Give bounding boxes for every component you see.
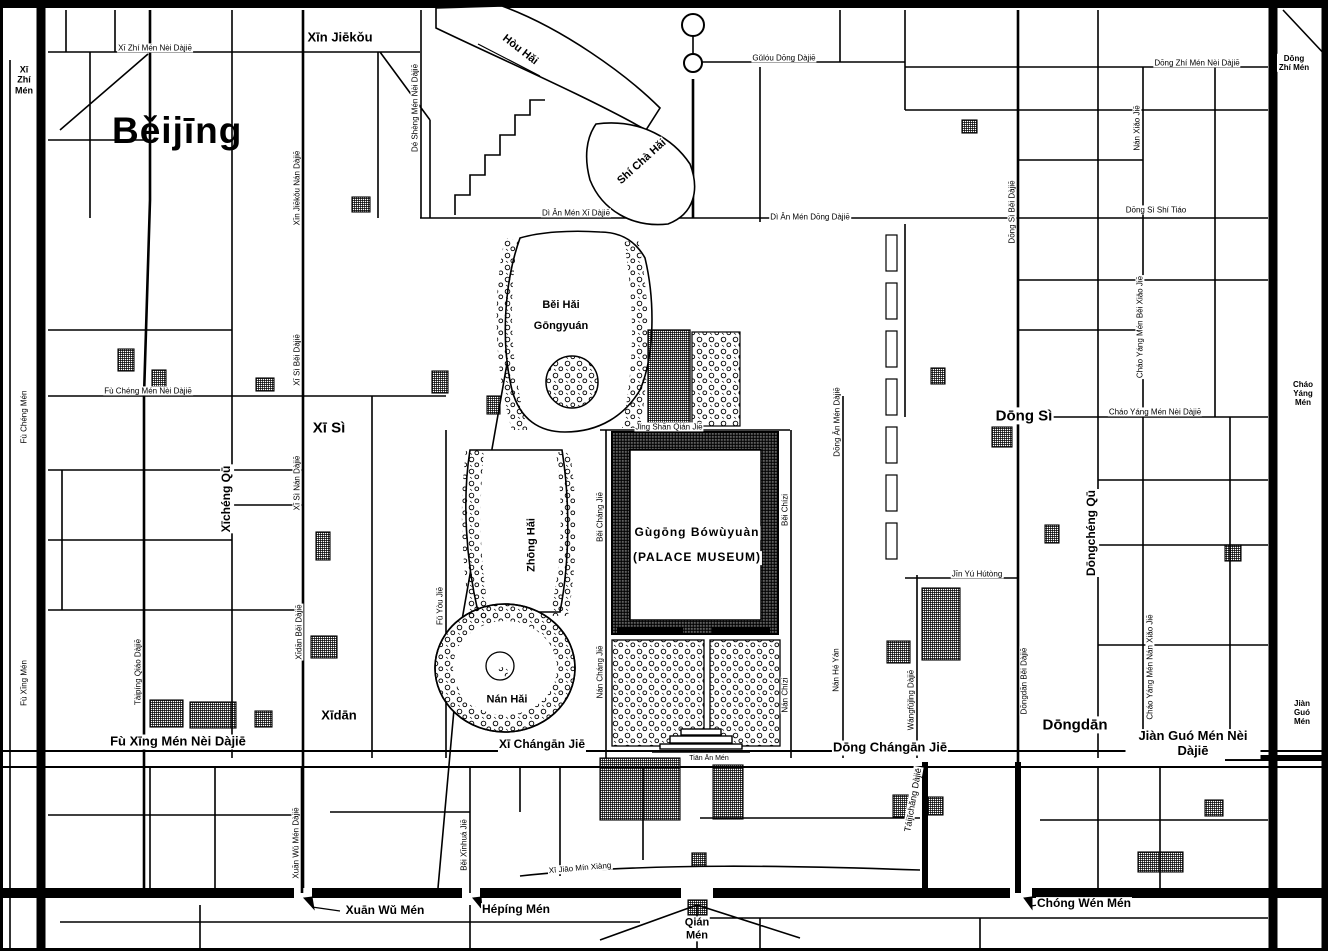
label-taijichang-dajie: Táijīchǎng Dàjiē (902, 766, 924, 833)
label-dong-zhi-men-nei-dajie: Dōng Zhí Mén Nèi Dàjiē (1153, 58, 1240, 67)
label-xicheng-qu: Xīchéng Qū (220, 465, 234, 534)
label-wangfujing-dajie: Wángfǔjǐng Dàjiē (906, 669, 915, 731)
label-dongdan-bei-dajie: Dōngdān Běi Dàjiē (1019, 647, 1028, 716)
label-bei-xinhua-jie: Běi Xīnhuá Jiē (459, 818, 468, 872)
label-hou-hai: Hòu Hǎi (499, 32, 541, 69)
label-de-sheng-men-nei-dajie: Dé Shèng Mén Nèi Dàjiē (410, 63, 419, 153)
label-nan-chizi: Nán Chízi (780, 676, 789, 713)
label-chao-yang-men-nei-dajie: Cháo Yáng Mén Nèi Dàjiē (1108, 407, 1202, 416)
label-xidan-bei-dajie: Xīdān Běi Dàjiē (294, 603, 303, 660)
label-chao-yang-men-bei-xiao-jie: Cháo Yáng Mén Běi Xiǎo Jiē (1135, 275, 1144, 379)
label-fu-cheng-men-nei-dajie: Fù Chéng Mén Nèi Dàjiē (103, 386, 193, 395)
label-xi-zhi-men: Xī Zhí Mén (14, 64, 34, 95)
label-dong-si-shi-tiao: Dōng Sì Shí Tiáo (1125, 205, 1187, 214)
label-fu-xing-men: Fù Xīng Mén (19, 659, 28, 707)
label-xin-jiekou-nan-dajie: Xīn Jiēkǒu Nán Dàjiē (292, 150, 301, 227)
label-xi-si-nan-dajie: Xī Sì Nán Dàjiē (292, 455, 301, 512)
label-jian-guo-men: Jiàn Guó Mén (1293, 699, 1311, 727)
label-tian-an-men: Tiān Ān Mén (688, 755, 729, 763)
label-shi-cha-hai: Shí Chà Hǎi (614, 136, 669, 188)
label-xi-zhi-men-nei-dajie: Xī Zhí Mén Nèi Dàjiē (117, 43, 193, 52)
label-chong-wen-men: Chóng Wén Mén (1036, 897, 1132, 911)
label-gulou-dong-dajie: Gǔlóu Dōng Dàjiē (751, 53, 816, 62)
beijing-street-map: Běijīng Xī Zhí Mén Nèi DàjiēXī Zhí MénXī… (0, 0, 1328, 951)
label-xuan-wu-men-dajie: Xuān Wǔ Mén Dàjiē (291, 806, 300, 879)
label-fu-you-jie: Fǔ Yòu Jiē (435, 586, 444, 626)
label-taiping-qiao-dajie: Tàipíng Qiáo Dàjiē (133, 638, 142, 706)
label-xi-si: Xī Sì (312, 419, 347, 436)
label-xin-jiekou: Xīn Jiēkǒu (306, 31, 373, 46)
label-chao-yang-men-nan-xiao-jie: Cháo Yáng Mén Nán Xiǎo Jiē (1145, 613, 1154, 720)
label-jin-yu-hutong: Jīn Yú Hútòng (951, 569, 1004, 578)
label-di-an-men-xi-dajie: Dì Ān Mén Xī Dàjiē (541, 208, 611, 217)
label-qian-men: Qián Mén (684, 916, 710, 941)
label-xuan-wu-men: Xuān Wǔ Mén (345, 904, 426, 918)
label-nan-chang-jie: Nán Cháng Jiē (595, 645, 604, 700)
label-jian-guo-men-nei-dajie: Jiàn Guó Mén Nèi Dàjiē (1126, 729, 1261, 759)
label-xidan: Xīdān (320, 709, 357, 724)
label-bei-chang-jie: Běi Cháng Jiē (595, 491, 604, 543)
label-gugong-bowuyuan: Gùgōng Bówùyuàn (634, 526, 761, 540)
label-heping-men: Hépíng Mén (481, 903, 551, 917)
label-xi-si-bei-dajie: Xī Sì Běi Dàjiē (292, 333, 301, 387)
label-xi-jiao-min-xiang: Xī Jiāo Mín Xiàng (547, 861, 612, 876)
label-palace-museum: (PALACE MUSEUM) (632, 551, 762, 565)
label-chao-yang-men: Cháo Yáng Mén (1292, 380, 1314, 408)
label-dongdan: Dōngdān (1042, 716, 1109, 733)
label-dong-si: Dōng Sì (995, 407, 1054, 424)
label-di-an-men-dong-dajie: Dì Ān Mén Dōng Dàjiē (769, 212, 851, 221)
label-nan-he-yan: Nán Hé Yán (831, 647, 840, 692)
label-fu-xing-men-nei-dajie: Fù Xīng Mén Nèi Dàjiē (109, 735, 247, 750)
label-fu-cheng-men: Fù Chéng Mén (19, 390, 28, 445)
label-dong-changan-jie: Dōng Chángān Jiē (832, 741, 948, 756)
label-zhong-hai: Zhōng Hǎi (526, 517, 539, 573)
label-nan-hai: Nán Hǎi (486, 694, 529, 707)
label-dong-an-men-dajie: Dōng Ān Mén Dàjiē (832, 386, 841, 457)
label-nan-xiao-jie: Nán Xiǎo Jiē (1132, 104, 1141, 151)
label-bei-chizi: Běi Chízi (780, 493, 789, 527)
labels-layer: Xī Zhí Mén Nèi DàjiēXī Zhí MénXīn Jiēkǒu… (0, 0, 1328, 951)
label-bei-hai-gongyuan: Běi Hǎi Gōngyuán (533, 295, 589, 337)
label-jing-shan-qian-jie: Jǐng Shān Qián Jiē (634, 422, 703, 431)
label-dong-si-bei-dajie: Dōng Sì Běi Dàjiē (1007, 179, 1016, 244)
label-xi-changan-jie: Xī Chángān Jiē (498, 738, 586, 752)
label-dong-zhi-men: Dōng Zhí Mén (1277, 54, 1311, 72)
label-dongcheng-qu: Dōngchéng Qū (1085, 489, 1099, 577)
